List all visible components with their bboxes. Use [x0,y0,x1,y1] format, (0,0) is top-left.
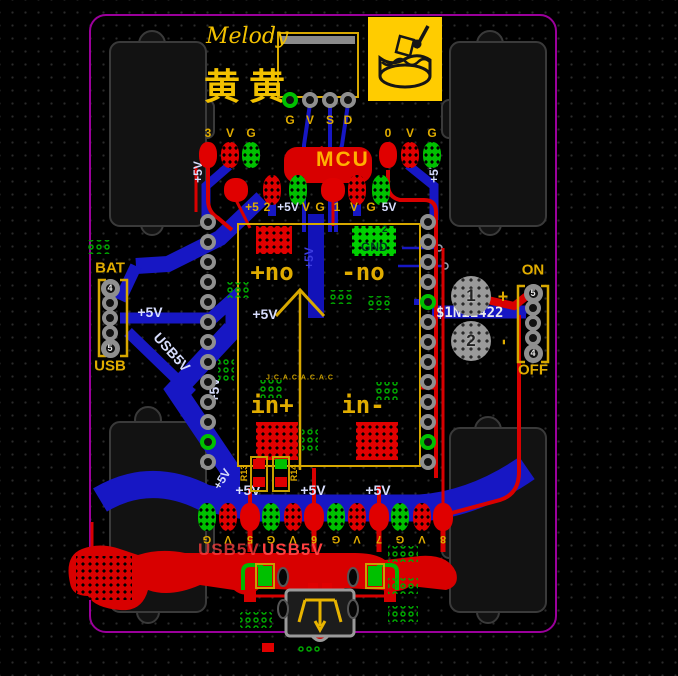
display-pin-G[interactable] [282,92,298,108]
bottom-row-pad[interactable] [240,503,260,531]
top-row-pad[interactable] [221,142,239,168]
bottom-row-label: 7 [376,533,382,545]
top-row-label: 0 [385,126,392,140]
row2-label: 5V [382,200,397,214]
display-pin-label: D [344,113,353,127]
display-pin-label: S [326,113,334,127]
left-column-pad[interactable] [200,274,216,290]
top-row-pad[interactable] [401,142,419,168]
via-cluster [258,380,284,398]
bottom-row-label: 6 [311,533,317,545]
via-cluster [76,556,132,600]
left-column-pad[interactable] [200,214,216,230]
bottom-row-pad[interactable] [219,503,237,531]
left-column-pad[interactable] [200,314,216,330]
via-cluster [368,296,390,310]
bottom-row-label: G [203,533,212,545]
bottom-row-pad[interactable] [433,503,453,531]
bottom-row-pad[interactable] [369,503,389,531]
bottom-row-pad[interactable] [391,503,409,531]
bottom-row-label: V [225,533,232,545]
row2-label: V [302,200,310,214]
via-cluster [374,382,400,400]
via-cluster [388,606,418,622]
via-cluster [296,644,322,654]
left-column-pad[interactable] [200,434,216,450]
row2-label: +5V [277,200,299,214]
via-cluster [86,240,112,254]
bottom-row-label: 8 [440,533,446,545]
left-column-pad[interactable] [200,414,216,430]
bottom-row-label: V [353,533,360,545]
row2-label: +5 [245,200,259,214]
right-column-pad[interactable] [420,414,436,430]
on-header-pin[interactable]: 4 [524,344,543,363]
right-column-pad[interactable] [420,294,436,310]
bottom-row-label: V [289,533,296,545]
top-row-pad[interactable] [379,142,397,168]
left-column-pad[interactable] [200,374,216,390]
top-row-label: 3 [205,126,212,140]
bat-header-pin[interactable] [102,310,118,326]
right-column-pad[interactable] [420,274,436,290]
bottom-row-pad[interactable] [262,503,280,531]
right-column-pad[interactable] [420,334,436,350]
right-column-pad[interactable] [420,374,436,390]
via-cluster [388,546,418,562]
row2-label: 1 [334,200,341,214]
top-row-label: G [246,126,255,140]
bottom-row-pad[interactable] [198,503,216,531]
pcb-canvas: Melody 黄黄 MCU BAT USB ON OFF + - +5V USB… [0,0,678,676]
row2-label: G [315,200,324,214]
bottom-row-label: G [396,533,405,545]
display-pin-label: V [306,113,314,127]
row2-label: 2 [264,200,271,214]
left-column-pad[interactable] [200,294,216,310]
row2-pad[interactable] [321,178,345,202]
via-cluster [330,290,352,304]
via-cluster [226,282,250,298]
row2-label: G [366,200,375,214]
display-pin-S[interactable] [322,92,338,108]
left-column-pad[interactable] [200,234,216,250]
top-row-label: V [406,126,414,140]
right-column-pad[interactable] [420,234,436,250]
pad-field: 4554GVSD3VG0VG+52+5VVG1VG5VGV5GV6GV7GV8 [0,0,678,676]
via-cluster [218,358,234,382]
display-pin-D[interactable] [340,92,356,108]
bottom-row-label: V [418,533,425,545]
bottom-row-label: G [331,533,340,545]
on-header-pin[interactable] [525,315,541,331]
top-row-label: V [226,126,234,140]
row2-pad[interactable] [224,178,248,202]
display-pin-V[interactable] [302,92,318,108]
on-header-pin[interactable] [525,300,541,316]
right-column-pad[interactable] [420,434,436,450]
bottom-row-label: G [267,533,276,545]
via-cluster [302,428,318,452]
bat-header-pin[interactable]: 5 [101,339,120,358]
top-row-pad[interactable] [242,142,260,168]
via-cluster [240,612,272,628]
right-column-pad[interactable] [420,314,436,330]
bat-header-pin[interactable] [102,295,118,311]
left-column-pad[interactable] [200,454,216,470]
top-row-pad[interactable] [423,142,441,168]
right-column-pad[interactable] [420,394,436,410]
bottom-row-pad[interactable] [284,503,302,531]
left-column-pad[interactable] [200,254,216,270]
bottom-row-pad[interactable] [413,503,431,531]
right-column-pad[interactable] [420,354,436,370]
bottom-row-pad[interactable] [348,503,366,531]
left-column-pad[interactable] [200,334,216,350]
display-pin-label: G [285,113,294,127]
row2-label: V [350,200,358,214]
right-column-pad[interactable] [420,214,436,230]
right-column-pad[interactable] [420,454,436,470]
top-row-label: G [427,126,436,140]
bottom-row-pad[interactable] [327,503,345,531]
left-column-pad[interactable] [200,354,216,370]
right-column-pad[interactable] [420,254,436,270]
left-column-pad[interactable] [200,394,216,410]
bottom-row-label: 5 [247,533,253,545]
bottom-row-pad[interactable] [304,503,324,531]
via-cluster [388,578,418,594]
top-row-pad[interactable] [199,142,217,168]
